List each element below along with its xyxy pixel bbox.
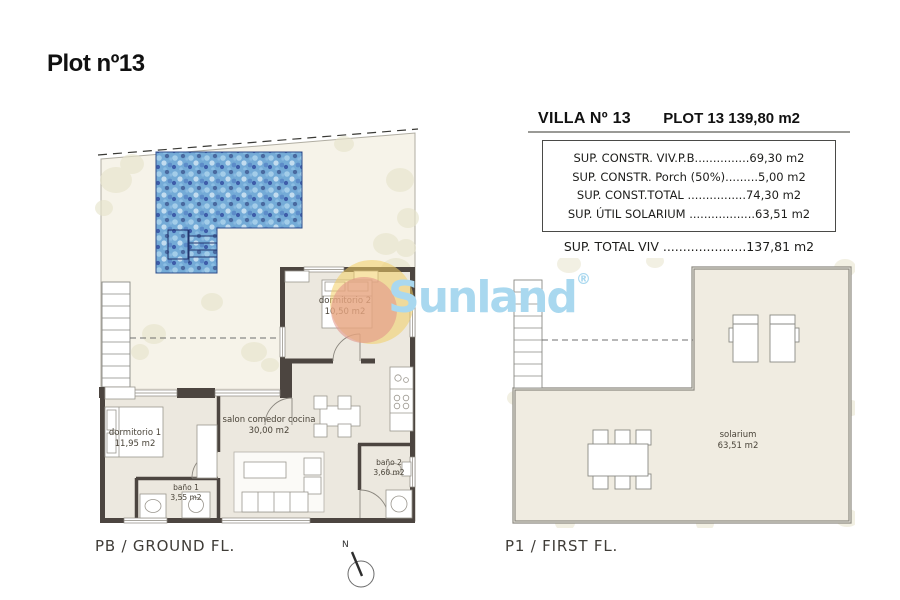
room-label-solarium: solarium 63,51 m2	[718, 430, 759, 452]
plot-size: PLOT 13 139,80 m2	[663, 110, 800, 127]
north-compass	[338, 543, 384, 593]
villa-number: VILLA Nº 13	[538, 110, 631, 128]
room-label-bano-1: baño 1 3,55 m2	[170, 483, 201, 503]
spec-table-header: VILLA Nº 13 PLOT 13 139,80 m2	[528, 110, 850, 133]
spec-table: VILLA Nº 13 PLOT 13 139,80 m2 SUP. CONST…	[528, 110, 850, 254]
room-label-salon: salon comedor cocina 30,00 m2	[223, 415, 316, 437]
spec-row: SUP. CONSTR. Porch (50%).........5,00 m2	[545, 168, 833, 187]
room-label-bano-2: baño 2 3,60 m2	[373, 458, 404, 478]
spec-total-row: SUP. TOTAL VIV .....................137,…	[542, 239, 836, 254]
spec-row: SUP. CONST.TOTAL ................74,30 m…	[545, 186, 833, 205]
floorplan-sheet: Plot nº13	[0, 0, 900, 600]
ground-floor-caption: PB / GROUND FL.	[95, 537, 235, 555]
compass-north-label: N	[342, 540, 349, 550]
spec-row: SUP. CONSTR. VIV.P.B...............69,30…	[545, 149, 833, 168]
kitchen-counter	[390, 367, 413, 431]
garden-staircase	[102, 282, 130, 387]
sunland-watermark: Sunland®	[388, 270, 591, 323]
spec-row: SUP. ÚTIL SOLARIUM ..................63,…	[545, 205, 833, 224]
room-label-dormitorio-1: dormitorio 1 11,95 m2	[109, 428, 161, 450]
outdoor-dining-set	[588, 430, 651, 489]
first-floor-caption: P1 / FIRST FL.	[505, 537, 618, 555]
spec-table-box: SUP. CONSTR. VIV.P.B...............69,30…	[542, 140, 836, 232]
registered-mark: ®	[576, 270, 591, 288]
page-title: Plot nº13	[47, 50, 145, 78]
